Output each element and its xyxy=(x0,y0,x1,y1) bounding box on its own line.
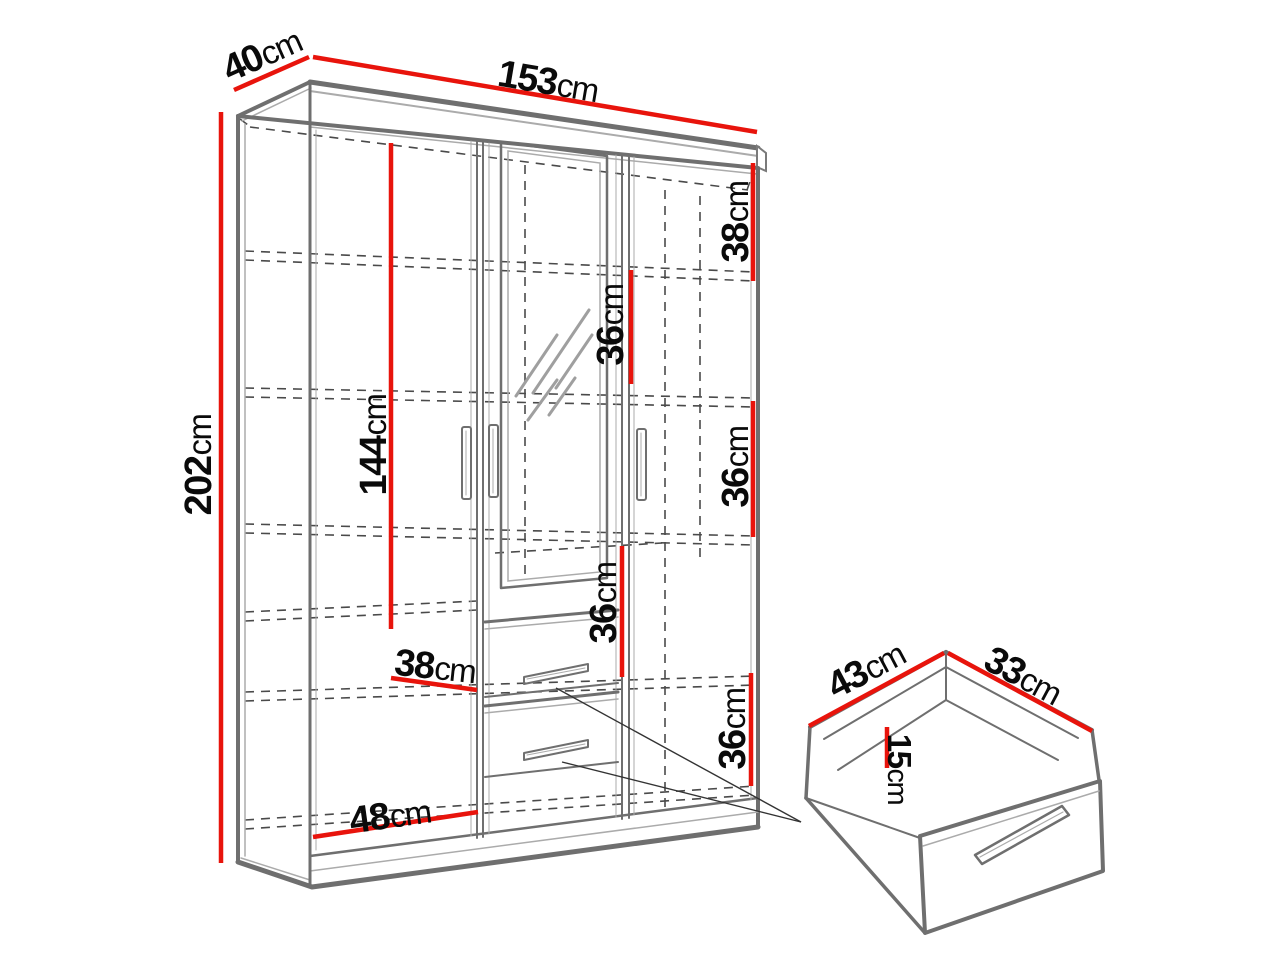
dimension-value: 36 xyxy=(590,326,632,365)
dimension-value: 36 xyxy=(583,604,625,643)
drawer-callout-lines xyxy=(556,688,801,822)
dimension-value: 48 xyxy=(347,795,392,842)
wardrobe-door-handles xyxy=(462,425,646,500)
dimension-value: 144 xyxy=(353,437,395,496)
dimension-unit: cm xyxy=(718,426,755,467)
dimension-value: 36 xyxy=(712,730,754,769)
dimension-label-drawer-height: 15cm xyxy=(882,734,916,804)
dimension-value: 38 xyxy=(715,223,757,262)
diagram-stage: 40cm 153cm 202cm 144cm 38cm 36cm 36cm 36… xyxy=(0,0,1280,960)
dimension-value: 38 xyxy=(392,642,435,688)
dimension-unit: cm xyxy=(433,649,478,690)
dimension-unit: cm xyxy=(586,562,623,603)
dimension-unit: cm xyxy=(881,769,913,805)
dimension-unit: cm xyxy=(718,181,755,222)
dimension-unit: cm xyxy=(387,793,433,835)
wardrobe-drawing xyxy=(238,82,766,887)
dimension-value: 15 xyxy=(881,734,918,768)
dimension-unit: cm xyxy=(356,395,393,436)
dimension-label-section-mid-lower: 36cm xyxy=(585,562,623,643)
dimension-label-height-left: 202cm xyxy=(180,415,218,516)
dimension-label-section-right-mid: 36cm xyxy=(717,426,755,507)
dimension-unit: cm xyxy=(554,66,601,109)
dimension-label-section-right-top: 38cm xyxy=(717,181,755,262)
dimension-value: 202 xyxy=(178,457,220,516)
dimension-unit: cm xyxy=(181,415,218,456)
dimension-unit: cm xyxy=(593,284,630,325)
dimension-label-section-mid-upper: 36cm xyxy=(592,284,630,365)
dimension-label-shelf-left: 38cm xyxy=(393,644,478,690)
dimension-value: 36 xyxy=(715,468,757,507)
dimension-lines xyxy=(221,57,1092,863)
dimension-unit: cm xyxy=(715,688,752,729)
dimension-label-section-right-bottom: 36cm xyxy=(714,688,752,769)
dimension-label-interior-height: 144cm xyxy=(355,395,393,496)
